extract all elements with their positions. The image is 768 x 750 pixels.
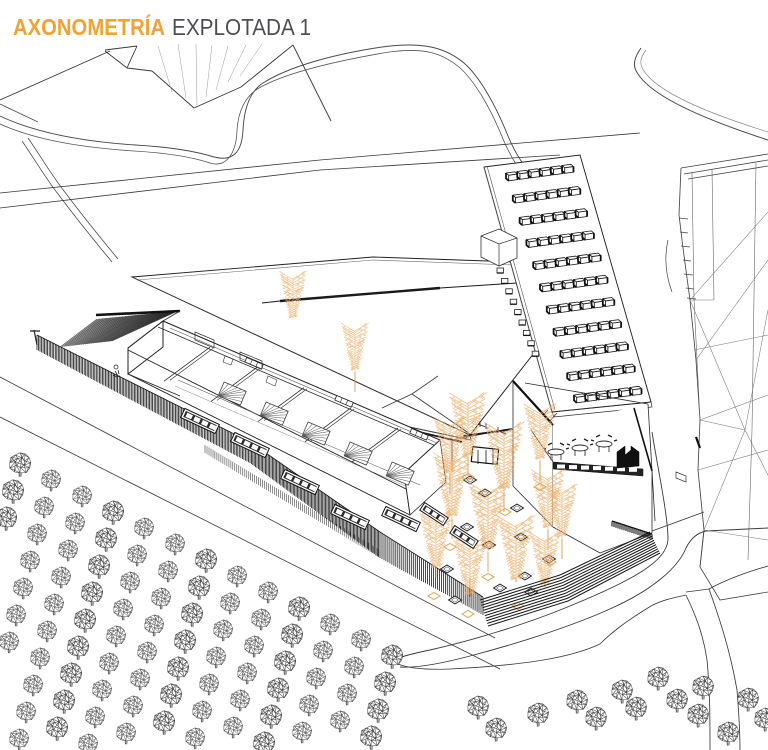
svg-text:AXONOMETRÍA: AXONOMETRÍA	[13, 13, 165, 40]
svg-text:EXPLOTADA 1: EXPLOTADA 1	[172, 14, 311, 40]
